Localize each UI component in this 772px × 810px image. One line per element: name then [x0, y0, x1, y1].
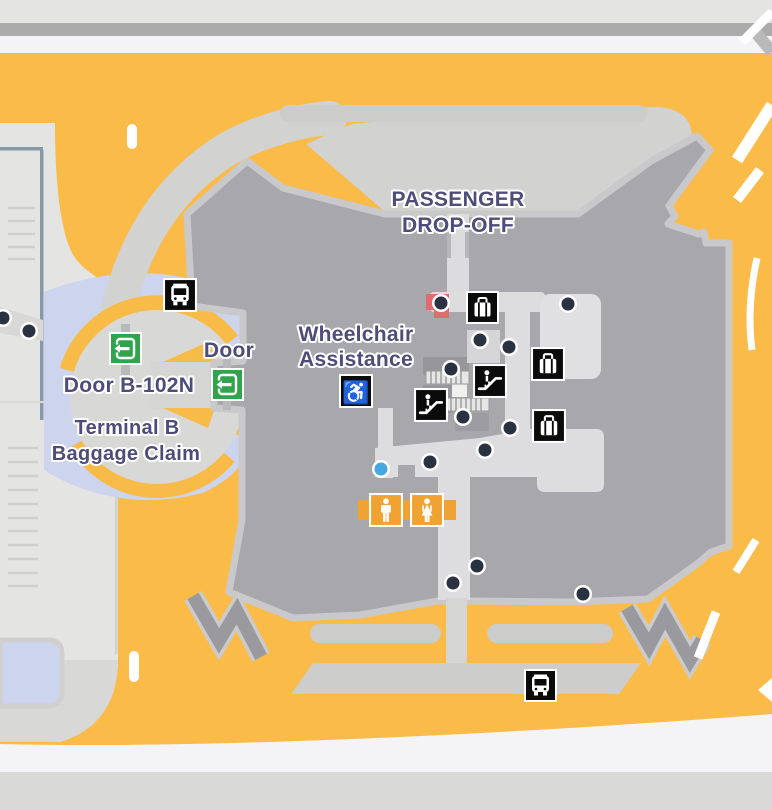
label-door-b102n: Door B-102N	[64, 374, 195, 397]
baggage-claim-icon[interactable]	[466, 291, 499, 324]
top-road	[0, 36, 772, 53]
poi-dot[interactable]	[20, 322, 38, 340]
label-wheelchair-line2: Assistance	[299, 348, 413, 371]
road-dash	[127, 124, 137, 149]
escalator-icon[interactable]	[414, 388, 448, 422]
bottom-road	[0, 772, 772, 810]
bus-lane	[487, 624, 613, 643]
bus-lane	[310, 624, 441, 643]
poi-dot[interactable]	[444, 574, 462, 592]
poi-dot[interactable]	[500, 338, 518, 356]
poi-dot[interactable]	[432, 294, 450, 312]
south-crosswalk	[446, 598, 467, 668]
label-passenger-dropoff-line2: DROP-OFF	[402, 214, 514, 237]
label-baggage-claim: Baggage Claim	[52, 443, 200, 465]
wheelchair-glyph: ♿	[342, 380, 369, 405]
poi-dot-blue[interactable]	[372, 460, 390, 478]
poi-dot[interactable]	[501, 419, 519, 437]
poi-dot[interactable]	[476, 441, 494, 459]
baggage-claim-icon[interactable]	[532, 409, 566, 443]
poi-dot[interactable]	[468, 557, 486, 575]
top-road-divider	[0, 23, 772, 36]
poi-dot[interactable]	[574, 585, 592, 603]
poi-dot[interactable]	[421, 453, 439, 471]
top-sidewalk	[0, 0, 772, 24]
bus-stop-icon[interactable]	[524, 669, 557, 702]
restroom-men-icon[interactable]	[369, 493, 403, 527]
baggage-claim-icon[interactable]	[531, 347, 565, 381]
exit-door-icon[interactable]	[109, 332, 142, 365]
escalator-icon[interactable]	[473, 364, 507, 398]
label-terminal-b: Terminal B	[75, 417, 180, 439]
poi-dot[interactable]	[442, 360, 460, 378]
poi-dot[interactable]	[454, 408, 472, 426]
wheelchair-assistance-icon[interactable]: ♿	[339, 374, 373, 408]
label-passenger-dropoff-line1: PASSENGER	[391, 188, 524, 211]
label-door: Door	[204, 339, 254, 362]
curbside-lavender-patch	[0, 640, 62, 706]
label-wheelchair-line1: Wheelchair	[298, 323, 413, 346]
dropoff-lane	[280, 105, 647, 122]
road-dash	[129, 651, 139, 682]
airport-terminal-map: ♿ PASSENGER DROP-OFF Wheelchair Assistan…	[0, 0, 772, 810]
restroom-women-icon[interactable]	[410, 493, 444, 527]
poi-dot[interactable]	[559, 295, 577, 313]
exit-door-icon[interactable]	[211, 368, 244, 401]
bus-stop-icon[interactable]	[163, 278, 197, 312]
bus-lane-long	[291, 663, 641, 694]
map-canvas: ♿ PASSENGER DROP-OFF Wheelchair Assistan…	[0, 0, 772, 810]
poi-dot[interactable]	[471, 331, 489, 349]
